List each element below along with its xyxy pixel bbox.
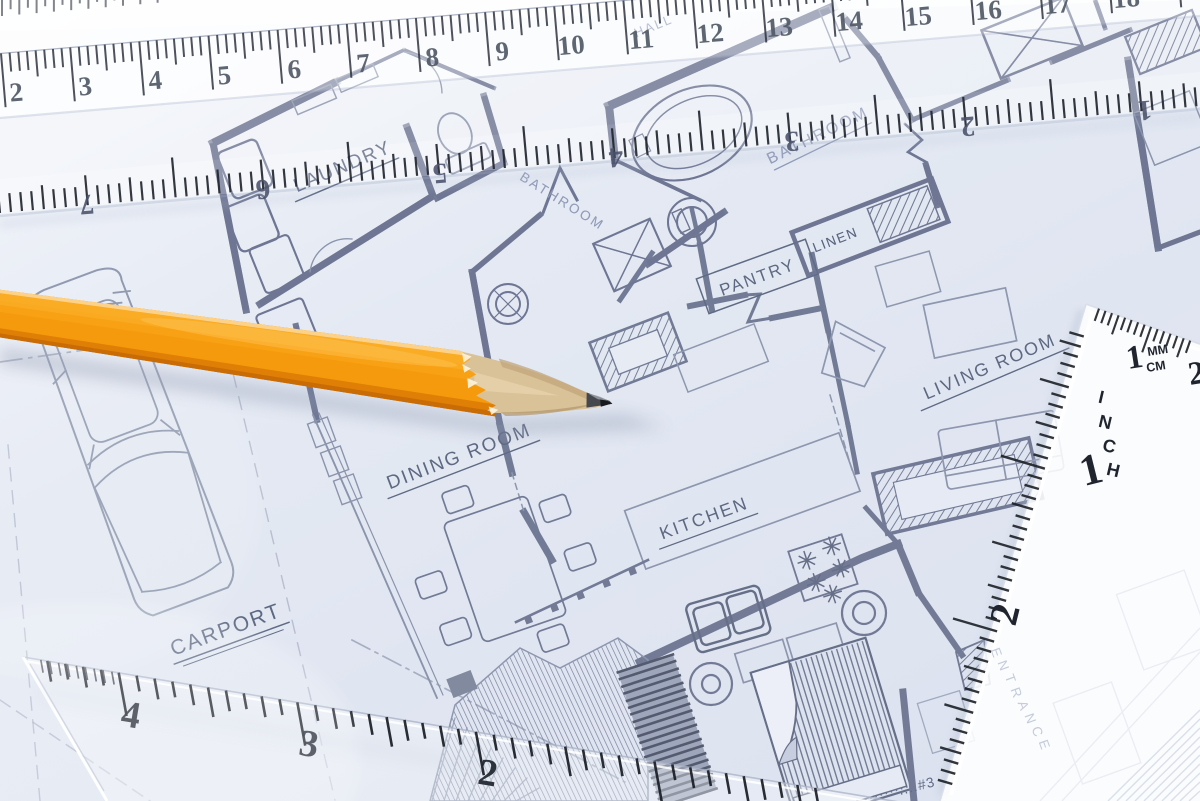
svg-text:4: 4 <box>147 65 163 96</box>
svg-text:11: 11 <box>627 23 655 55</box>
svg-text:2: 2 <box>959 109 976 142</box>
svg-text:13: 13 <box>764 11 793 43</box>
svg-text:5: 5 <box>216 60 232 91</box>
svg-text:3: 3 <box>783 124 800 157</box>
svg-text:1: 1 <box>1136 93 1153 126</box>
svg-text:7: 7 <box>78 187 95 220</box>
svg-text:6: 6 <box>286 54 302 85</box>
svg-text:7: 7 <box>355 48 371 79</box>
svg-text:17: 17 <box>1042 0 1071 20</box>
svg-text:3: 3 <box>77 71 93 102</box>
svg-text:10: 10 <box>556 29 585 61</box>
svg-text:18: 18 <box>1111 0 1140 14</box>
svg-text:16: 16 <box>973 0 1002 26</box>
svg-text:6: 6 <box>254 172 271 205</box>
svg-text:14: 14 <box>834 5 863 37</box>
svg-text:9: 9 <box>494 36 510 67</box>
svg-text:12: 12 <box>695 17 724 49</box>
svg-text:2: 2 <box>8 77 24 108</box>
svg-text:8: 8 <box>424 42 440 73</box>
svg-text:4: 4 <box>607 140 624 173</box>
svg-text:15: 15 <box>903 0 932 32</box>
svg-text:5: 5 <box>431 156 448 189</box>
